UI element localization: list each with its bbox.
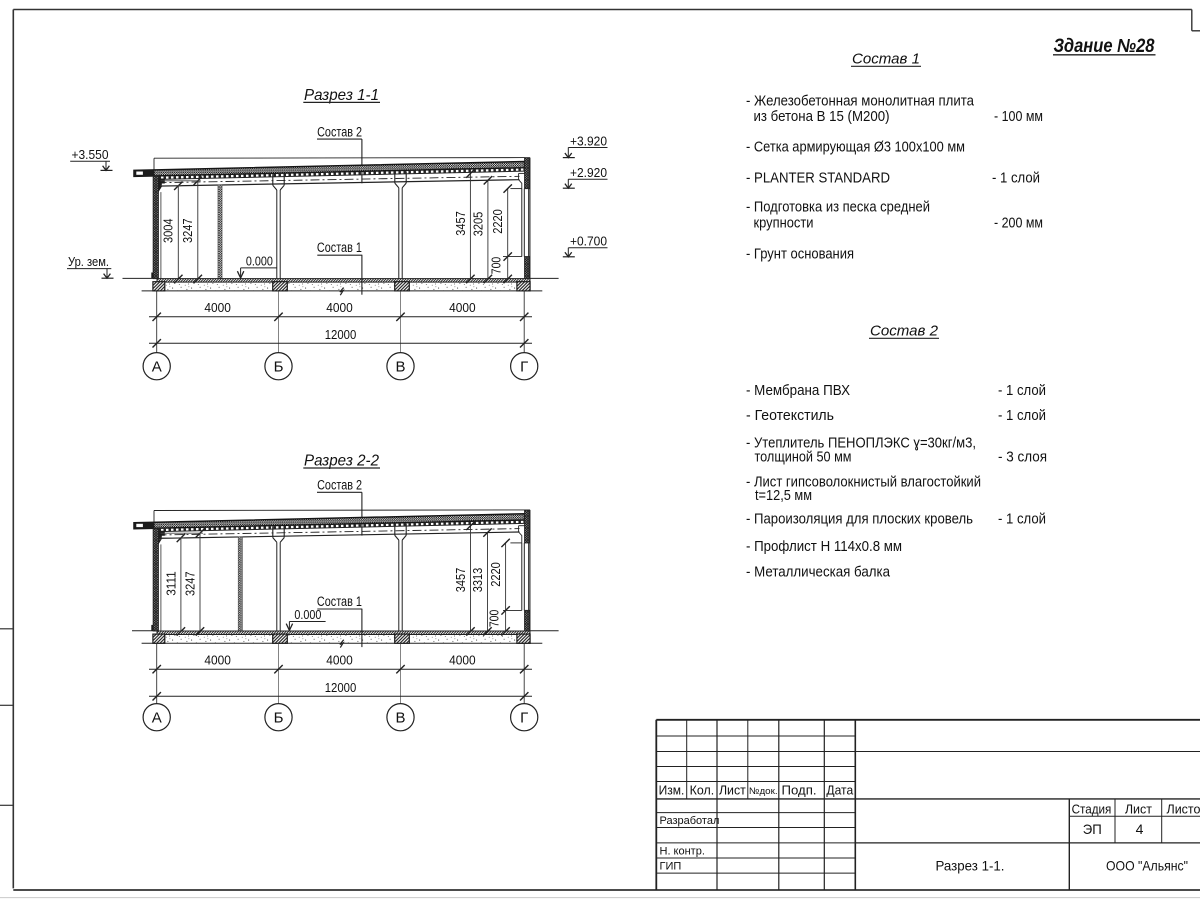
svg-text:- Сетка армирующая Ø3 100х100: - Сетка армирующая Ø3 100х100 мм <box>746 140 965 156</box>
svg-text:Разработал: Разработал <box>660 815 720 827</box>
svg-text:t=12,5 мм: t=12,5 мм <box>755 488 812 504</box>
svg-text:700: 700 <box>489 257 504 275</box>
svg-text:4000: 4000 <box>204 300 231 315</box>
svg-text:Листов: Листов <box>1167 803 1200 817</box>
svg-text:толщиной 50 мм: толщиной 50 мм <box>755 450 852 466</box>
svg-text:- PLANTER STANDARD: - PLANTER STANDARD <box>746 170 890 186</box>
svg-text:0.000: 0.000 <box>246 254 273 269</box>
svg-text:А: А <box>152 358 162 375</box>
svg-text:Ур. зем.: Ур. зем. <box>68 254 109 269</box>
svg-text:3004: 3004 <box>161 218 176 243</box>
svg-text:Г: Г <box>520 358 528 375</box>
svg-text:4000: 4000 <box>326 300 353 315</box>
svg-text:Лист: Лист <box>719 782 746 797</box>
svg-text:4000: 4000 <box>326 653 353 668</box>
svg-text:В: В <box>395 709 405 726</box>
svg-text:В: В <box>395 358 405 375</box>
svg-text:- Профлист Н 114х0.8 мм: - Профлист Н 114х0.8 мм <box>746 539 902 555</box>
svg-text:2220: 2220 <box>488 562 503 587</box>
svg-text:Состав 2: Состав 2 <box>317 478 362 493</box>
svg-text:- Мембрана ПВХ: - Мембрана ПВХ <box>746 383 850 399</box>
svg-text:+0.700: +0.700 <box>570 234 607 249</box>
svg-text:- 3 слоя: - 3 слоя <box>998 450 1047 466</box>
svg-text:3247: 3247 <box>180 218 195 243</box>
svg-text:- 1 слой: - 1 слой <box>998 512 1046 528</box>
svg-text:- Железобетонная монолитная п: - Железобетонная монолитная плита <box>746 93 975 109</box>
svg-text:+2.920: +2.920 <box>570 165 607 180</box>
svg-text:А: А <box>152 709 162 726</box>
svg-text:- 1 слой: - 1 слой <box>992 170 1040 186</box>
svg-text:ЭП: ЭП <box>1083 821 1102 837</box>
svg-text:4000: 4000 <box>204 653 231 668</box>
svg-text:Состав 1: Состав 1 <box>317 240 362 255</box>
svg-text:Кол.: Кол. <box>690 782 715 797</box>
svg-text:700: 700 <box>487 610 502 628</box>
svg-text:№док.: №док. <box>749 786 778 797</box>
svg-text:- 100 мм: - 100 мм <box>994 109 1043 125</box>
svg-text:Лист: Лист <box>1125 803 1152 817</box>
svg-text:3457: 3457 <box>453 211 468 236</box>
svg-text:2220: 2220 <box>490 209 505 234</box>
svg-text:4000: 4000 <box>449 300 476 315</box>
svg-text:Г: Г <box>520 709 528 726</box>
svg-text:Разрез 1-1: Разрез 1-1 <box>304 87 379 104</box>
svg-text:Изм.: Изм. <box>659 782 685 797</box>
svg-text:Б: Б <box>274 358 284 375</box>
svg-text:Состав 2: Состав 2 <box>870 322 939 339</box>
svg-text:12000: 12000 <box>325 327 357 342</box>
svg-text:Разрез 2-2: Разрез 2-2 <box>304 452 379 469</box>
svg-text:Состав 1: Состав 1 <box>852 50 920 67</box>
svg-text:- 1 слой: - 1 слой <box>998 408 1046 424</box>
svg-text:3313: 3313 <box>470 568 485 593</box>
svg-text:Подп.: Подп. <box>782 782 817 797</box>
svg-text:Состав 2: Состав 2 <box>317 124 362 139</box>
svg-text:Н. контр.: Н. контр. <box>660 845 705 857</box>
svg-text:3457: 3457 <box>453 568 468 593</box>
svg-text:Б: Б <box>274 709 284 726</box>
svg-text:- Подготовка из песка средней: - Подготовка из песка средней <box>746 200 930 216</box>
svg-text:- Геотекстиль: - Геотекстиль <box>746 408 834 424</box>
svg-text:3111: 3111 <box>163 571 178 596</box>
svg-text:- 200 мм: - 200 мм <box>994 216 1043 232</box>
svg-text:Стадия: Стадия <box>1072 803 1112 817</box>
svg-text:- Пароизоляция для плоских кро: - Пароизоляция для плоских кровель <box>746 512 973 528</box>
svg-text:Дата: Дата <box>826 782 854 797</box>
svg-text:- Грунт основания: - Грунт основания <box>746 246 854 262</box>
svg-text:4: 4 <box>1136 821 1144 837</box>
svg-text:- 1 слой: - 1 слой <box>998 383 1046 399</box>
svg-text:+3.920: +3.920 <box>570 133 607 148</box>
svg-text:из бетона В 15 (М200): из бетона В 15 (М200) <box>754 109 890 125</box>
svg-text:Разрез 1-1.: Разрез 1-1. <box>936 857 1005 873</box>
svg-text:ГИП: ГИП <box>660 860 682 872</box>
svg-text:4000: 4000 <box>449 653 476 668</box>
svg-text:- Металлическая балка: - Металлическая балка <box>746 565 891 581</box>
svg-text:Здание №28: Здание №28 <box>1054 36 1155 57</box>
svg-text:12000: 12000 <box>325 680 357 695</box>
svg-text:Состав 1: Состав 1 <box>317 594 362 609</box>
svg-text:крупности: крупности <box>754 216 814 232</box>
svg-text:ООО "Альянс": ООО "Альянс" <box>1106 857 1188 873</box>
svg-text:+3.550: +3.550 <box>72 147 109 162</box>
svg-text:3205: 3205 <box>470 212 485 237</box>
svg-text:3247: 3247 <box>182 571 197 596</box>
